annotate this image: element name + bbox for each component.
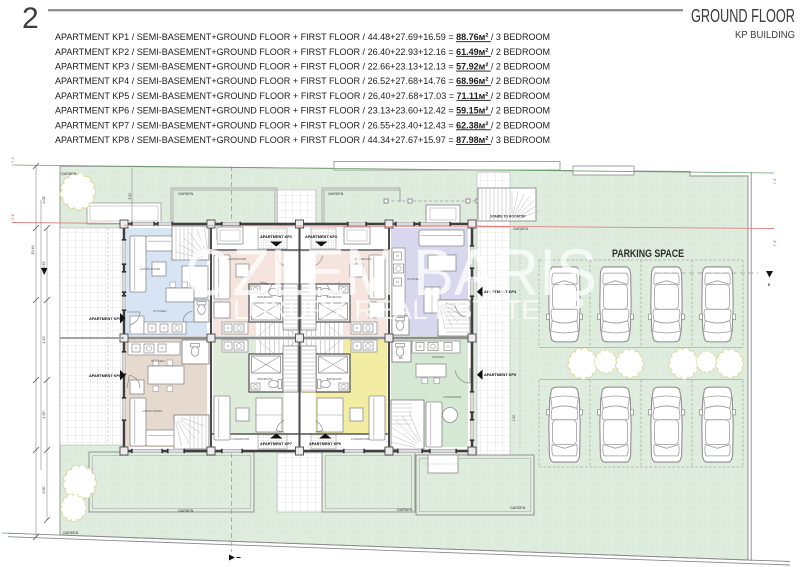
svg-text:3.08: 3.08 [42,197,46,204]
svg-text:APARTMENT KP3 / SEMI-BASEMENT+: APARTMENT KP3 / SEMI-BASEMENT+GROUND FLO… [55,61,550,72]
svg-text:APARTMENT KP1: APARTMENT KP1 [89,317,121,321]
svg-text:APARTMENT KP7 / SEMI-BASEMENT+: APARTMENT KP7 / SEMI-BASEMENT+GROUND FLO… [55,119,550,130]
svg-text:GARDEN: GARDEN [63,531,79,535]
svg-text:5.50: 5.50 [128,193,132,200]
svg-text:7.4′: 7.4′ [772,240,777,247]
svg-text:GARDEN: GARDEN [328,192,344,196]
svg-text:LIVING ROOM: LIVING ROOM [142,409,163,413]
svg-text:APARTMENT KP5 / SEMI-BASEMENT+: APARTMENT KP5 / SEMI-BASEMENT+GROUND FLO… [55,90,550,101]
svg-text:LIVINGROOM: LIVINGROOM [351,437,370,441]
svg-text:B: B [768,282,771,287]
svg-text:LUXURY REAL ESTATE: LUXURY REAL ESTATE [233,295,540,325]
svg-text:LIVINGROOM: LIVINGROOM [231,437,250,441]
svg-text:15.48: 15.48 [31,246,35,255]
svg-text:STAIRS TO ROOFTOP: STAIRS TO ROOFTOP [490,215,526,219]
svg-text:5.45: 5.45 [42,262,46,269]
svg-text:GROUND FLOOR: GROUND FLOOR [691,6,795,26]
svg-text:KITCHEN: KITCHEN [432,355,444,359]
svg-text:GARDEN: GARDEN [513,227,529,231]
svg-text:1.50: 1.50 [512,415,516,422]
svg-text:KITCHEN: KITCHEN [153,309,166,313]
svg-text:5.50: 5.50 [42,487,46,494]
svg-text:7.4′: 7.4′ [10,156,15,163]
svg-text:GARDEN: GARDEN [178,509,194,513]
svg-text:KP BUILDING: KP BUILDING [735,30,795,41]
svg-text:7.4′: 7.4′ [10,213,15,220]
svg-text:2: 2 [22,2,39,35]
svg-text:GARDEN: GARDEN [61,172,77,176]
svg-text:4.40: 4.40 [42,337,46,344]
svg-text:APARTMENT KP8 / SEMI-BASEMENT+: APARTMENT KP8 / SEMI-BASEMENT+GROUND FLO… [55,134,550,145]
svg-text:APARTMENT KP8: APARTMENT KP8 [89,374,121,378]
svg-text:APARTMENT KP6 / SEMI-BASEMENT+: APARTMENT KP6 / SEMI-BASEMENT+GROUND FLO… [55,105,550,116]
svg-text:APARTMENT KP7: APARTMENT KP7 [260,442,292,446]
svg-text:WC: WC [399,356,403,360]
svg-text:GARDEN: GARDEN [510,506,526,510]
svg-text:LIVING ROOM: LIVING ROOM [140,267,161,271]
svg-text:APARTMENT KP6: APARTMENT KP6 [309,442,341,446]
svg-text:BATHROOM: BATHROOM [258,377,273,381]
svg-text:APARTMENT KP2 / SEMI-BASEMENT+: APARTMENT KP2 / SEMI-BASEMENT+GROUND FLO… [55,46,550,57]
svg-text:7.4′: 7.4′ [772,178,777,185]
svg-text:GARDEN: GARDEN [178,192,194,196]
svg-text:PARKING SPACE: PARKING SPACE [612,248,684,260]
svg-text:APARTMENT KP1 / SEMI-BASEMENT+: APARTMENT KP1 / SEMI-BASEMENT+GROUND FLO… [55,31,550,42]
svg-text:KITCHEN: KITCHEN [151,359,164,363]
svg-text:APARTMENT KP5: APARTMENT KP5 [484,373,516,377]
svg-text:4.50: 4.50 [42,412,46,419]
svg-text:LIVINGROOM: LIVINGROOM [443,395,462,399]
svg-text:GARDEN: GARDEN [397,508,413,512]
svg-text:BATHROOM: BATHROOM [327,377,342,381]
svg-text:APARTMENT KP4 / SEMI-BASEMENT+: APARTMENT KP4 / SEMI-BASEMENT+GROUND FLO… [55,75,550,86]
